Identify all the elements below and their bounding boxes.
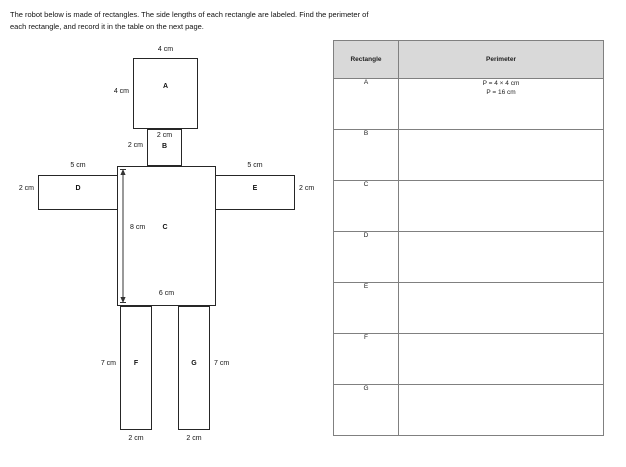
perimeter-cell — [399, 334, 604, 385]
instructions-line-2: each rectangle, and record it in the tab… — [10, 21, 440, 33]
rectangle-label-cell: F — [334, 334, 399, 385]
dim-label-b-height: 2 cm — [114, 141, 143, 150]
rectangle-c-torso — [117, 166, 216, 306]
perimeter-work-line-1: P = 4 × 4 cm — [399, 79, 603, 88]
perimeter-cell — [399, 385, 604, 436]
perimeter-cell: P = 4 × 4 cm P = 16 cm — [399, 79, 604, 130]
rectangle-g-right-leg — [178, 306, 210, 430]
dim-label-a-height: 4 cm — [100, 87, 129, 96]
rectangle-d-label: D — [38, 184, 118, 193]
dim-label-f-width: 2 cm — [120, 434, 152, 443]
worksheet-page: The robot below is made of rectangles. T… — [0, 0, 626, 467]
rectangle-e-label: E — [215, 184, 295, 193]
table-row: C — [334, 181, 604, 232]
rectangle-a-head — [133, 58, 198, 129]
rectangle-label-cell: E — [334, 283, 399, 334]
perimeter-cell — [399, 283, 604, 334]
rectangle-a-label: A — [133, 82, 198, 91]
table-row: A P = 4 × 4 cm P = 16 cm — [334, 79, 604, 130]
perimeter-cell — [399, 130, 604, 181]
perimeter-answer-table: Rectangle Perimeter A P = 4 × 4 cm P = 1… — [333, 40, 604, 436]
rectangle-column-header: Rectangle — [334, 41, 399, 79]
dim-label-g-width: 2 cm — [178, 434, 210, 443]
height-dimension-arrow-icon — [117, 168, 131, 304]
table-row: G — [334, 385, 604, 436]
rectangle-f-label: F — [120, 359, 152, 368]
table-row: B — [334, 130, 604, 181]
perimeter-cell — [399, 181, 604, 232]
perimeter-column-header: Perimeter — [399, 41, 604, 79]
perimeter-cell — [399, 232, 604, 283]
instructions: The robot below is made of rectangles. T… — [10, 9, 440, 33]
table-row: E — [334, 283, 604, 334]
table-row: F — [334, 334, 604, 385]
dim-label-d-width: 5 cm — [38, 161, 118, 170]
table-header-row: Rectangle Perimeter — [334, 41, 604, 79]
dim-label-f-height: 7 cm — [88, 359, 116, 368]
rectangle-label-cell: B — [334, 130, 399, 181]
dim-label-b-width: 2 cm — [147, 131, 182, 140]
rectangle-label-cell: G — [334, 385, 399, 436]
rectangle-f-left-leg — [120, 306, 152, 430]
rectangle-g-label: G — [178, 359, 210, 368]
rectangle-label-cell: D — [334, 232, 399, 283]
dim-label-c-height: 8 cm — [130, 223, 145, 232]
rectangle-c-label: C — [150, 223, 180, 232]
dim-label-c-width: 6 cm — [117, 289, 216, 298]
dim-label-a-width: 4 cm — [133, 45, 198, 54]
rectangle-label-cell: C — [334, 181, 399, 232]
dim-label-g-height: 7 cm — [214, 359, 229, 368]
dim-label-e-width: 5 cm — [215, 161, 295, 170]
table-row: D — [334, 232, 604, 283]
rectangle-b-label: B — [147, 142, 182, 151]
rectangle-label-cell: A — [334, 79, 399, 130]
perimeter-work-line-2: P = 16 cm — [399, 88, 603, 97]
instructions-line-1: The robot below is made of rectangles. T… — [10, 9, 440, 21]
dim-label-d-height: 2 cm — [6, 184, 34, 193]
dim-label-e-height: 2 cm — [299, 184, 314, 193]
